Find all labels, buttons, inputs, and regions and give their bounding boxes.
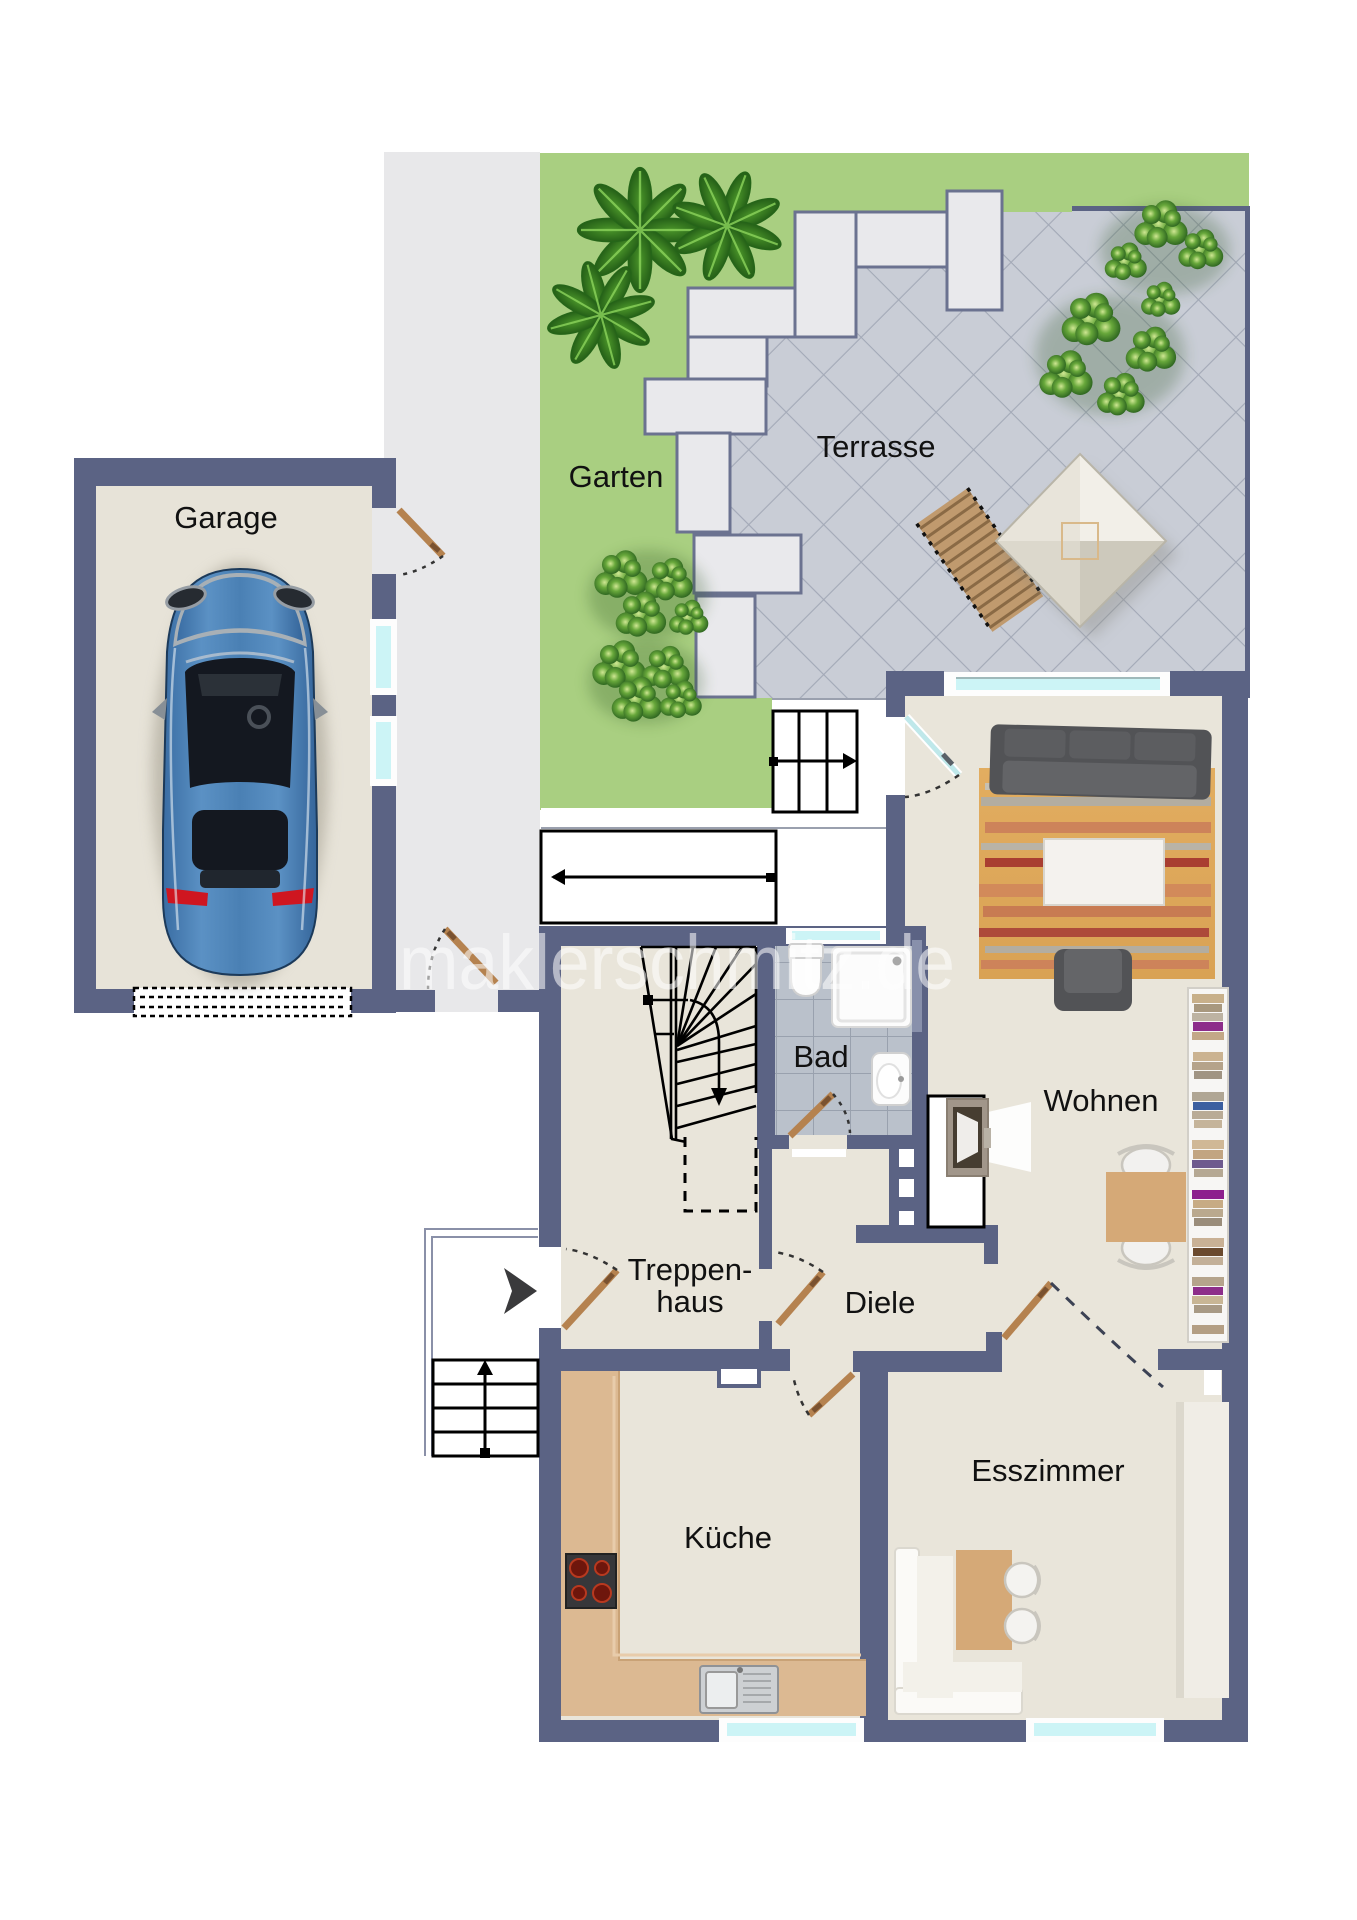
svg-text:Diele: Diele xyxy=(845,1285,916,1320)
svg-text:haus: haus xyxy=(656,1284,723,1319)
svg-text:Treppen-: Treppen- xyxy=(628,1252,753,1287)
svg-text:Terrasse: Terrasse xyxy=(817,429,936,464)
svg-text:Esszimmer: Esszimmer xyxy=(971,1453,1124,1488)
svg-text:Küche: Küche xyxy=(684,1520,772,1555)
svg-text:Garage: Garage xyxy=(174,500,277,535)
svg-text:Garten: Garten xyxy=(569,459,664,494)
svg-text:Bad: Bad xyxy=(793,1039,848,1074)
svg-text:maklerschmitz.de: maklerschmitz.de xyxy=(399,920,955,1006)
svg-text:Wohnen: Wohnen xyxy=(1044,1083,1159,1118)
